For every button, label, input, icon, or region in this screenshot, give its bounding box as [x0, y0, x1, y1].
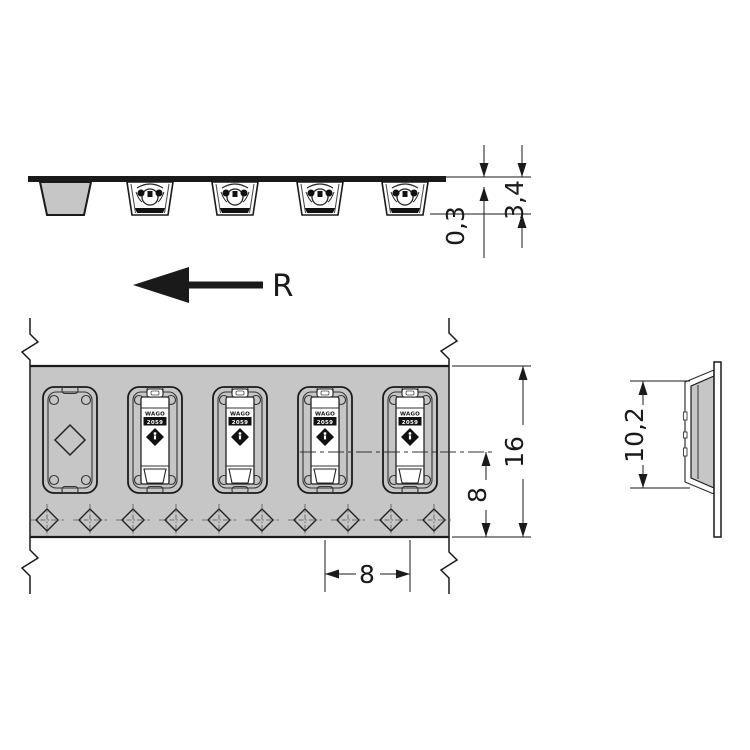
side-view-pocket-1: [127, 182, 173, 215]
dim-pocket-pitch: 8: [325, 540, 410, 592]
dim-tape-thickness: 0,3: [441, 145, 489, 258]
dim-pocket-depth: 3,4: [500, 145, 529, 248]
dim-tape-width: 16: [500, 366, 537, 537]
feed-direction: R: [133, 267, 294, 304]
profile-tape: [714, 362, 721, 537]
feed-direction-arrow-icon: [133, 267, 189, 303]
dim-pocket-pitch-label: 8: [359, 560, 375, 589]
dim-center-to-edge: 8: [463, 452, 499, 537]
dim-tape-width-label: 16: [500, 436, 529, 468]
dim-component-height: 10,2: [620, 381, 657, 488]
feed-direction-label: R: [272, 268, 294, 304]
profile-pocket-body: [691, 376, 714, 488]
side-view-tape: [28, 176, 446, 182]
dim-tape-thickness-label: 0,3: [441, 206, 470, 246]
plan-empty-pocket: [43, 387, 97, 494]
profile-view: 10,2: [620, 362, 721, 537]
dim-pocket-depth-label: 3,4: [500, 180, 529, 220]
dim-center-to-edge-label: 8: [463, 487, 492, 503]
profile-latch-notch: [684, 432, 688, 438]
drawing-canvas: WAGO 2059: [0, 0, 750, 750]
side-view-pocket-2: [212, 182, 258, 215]
plan-view: 8 16 8: [22, 318, 537, 594]
side-view: 0,3 3,4: [28, 145, 531, 258]
profile-latch-notch: [684, 448, 688, 456]
dim-component-height-label: 10,2: [620, 407, 649, 463]
feed-direction-arrow-shaft: [187, 282, 263, 289]
side-view-pocket-3: [297, 182, 343, 215]
side-view-empty-pocket: [40, 182, 91, 215]
profile-latch-notch: [684, 412, 688, 420]
plan-pocket-4: [383, 387, 437, 494]
side-view-pocket-4: [382, 182, 428, 215]
plan-pocket-3: [298, 387, 352, 494]
plan-pocket-2: [213, 387, 267, 494]
plan-pocket-1: [128, 387, 182, 494]
